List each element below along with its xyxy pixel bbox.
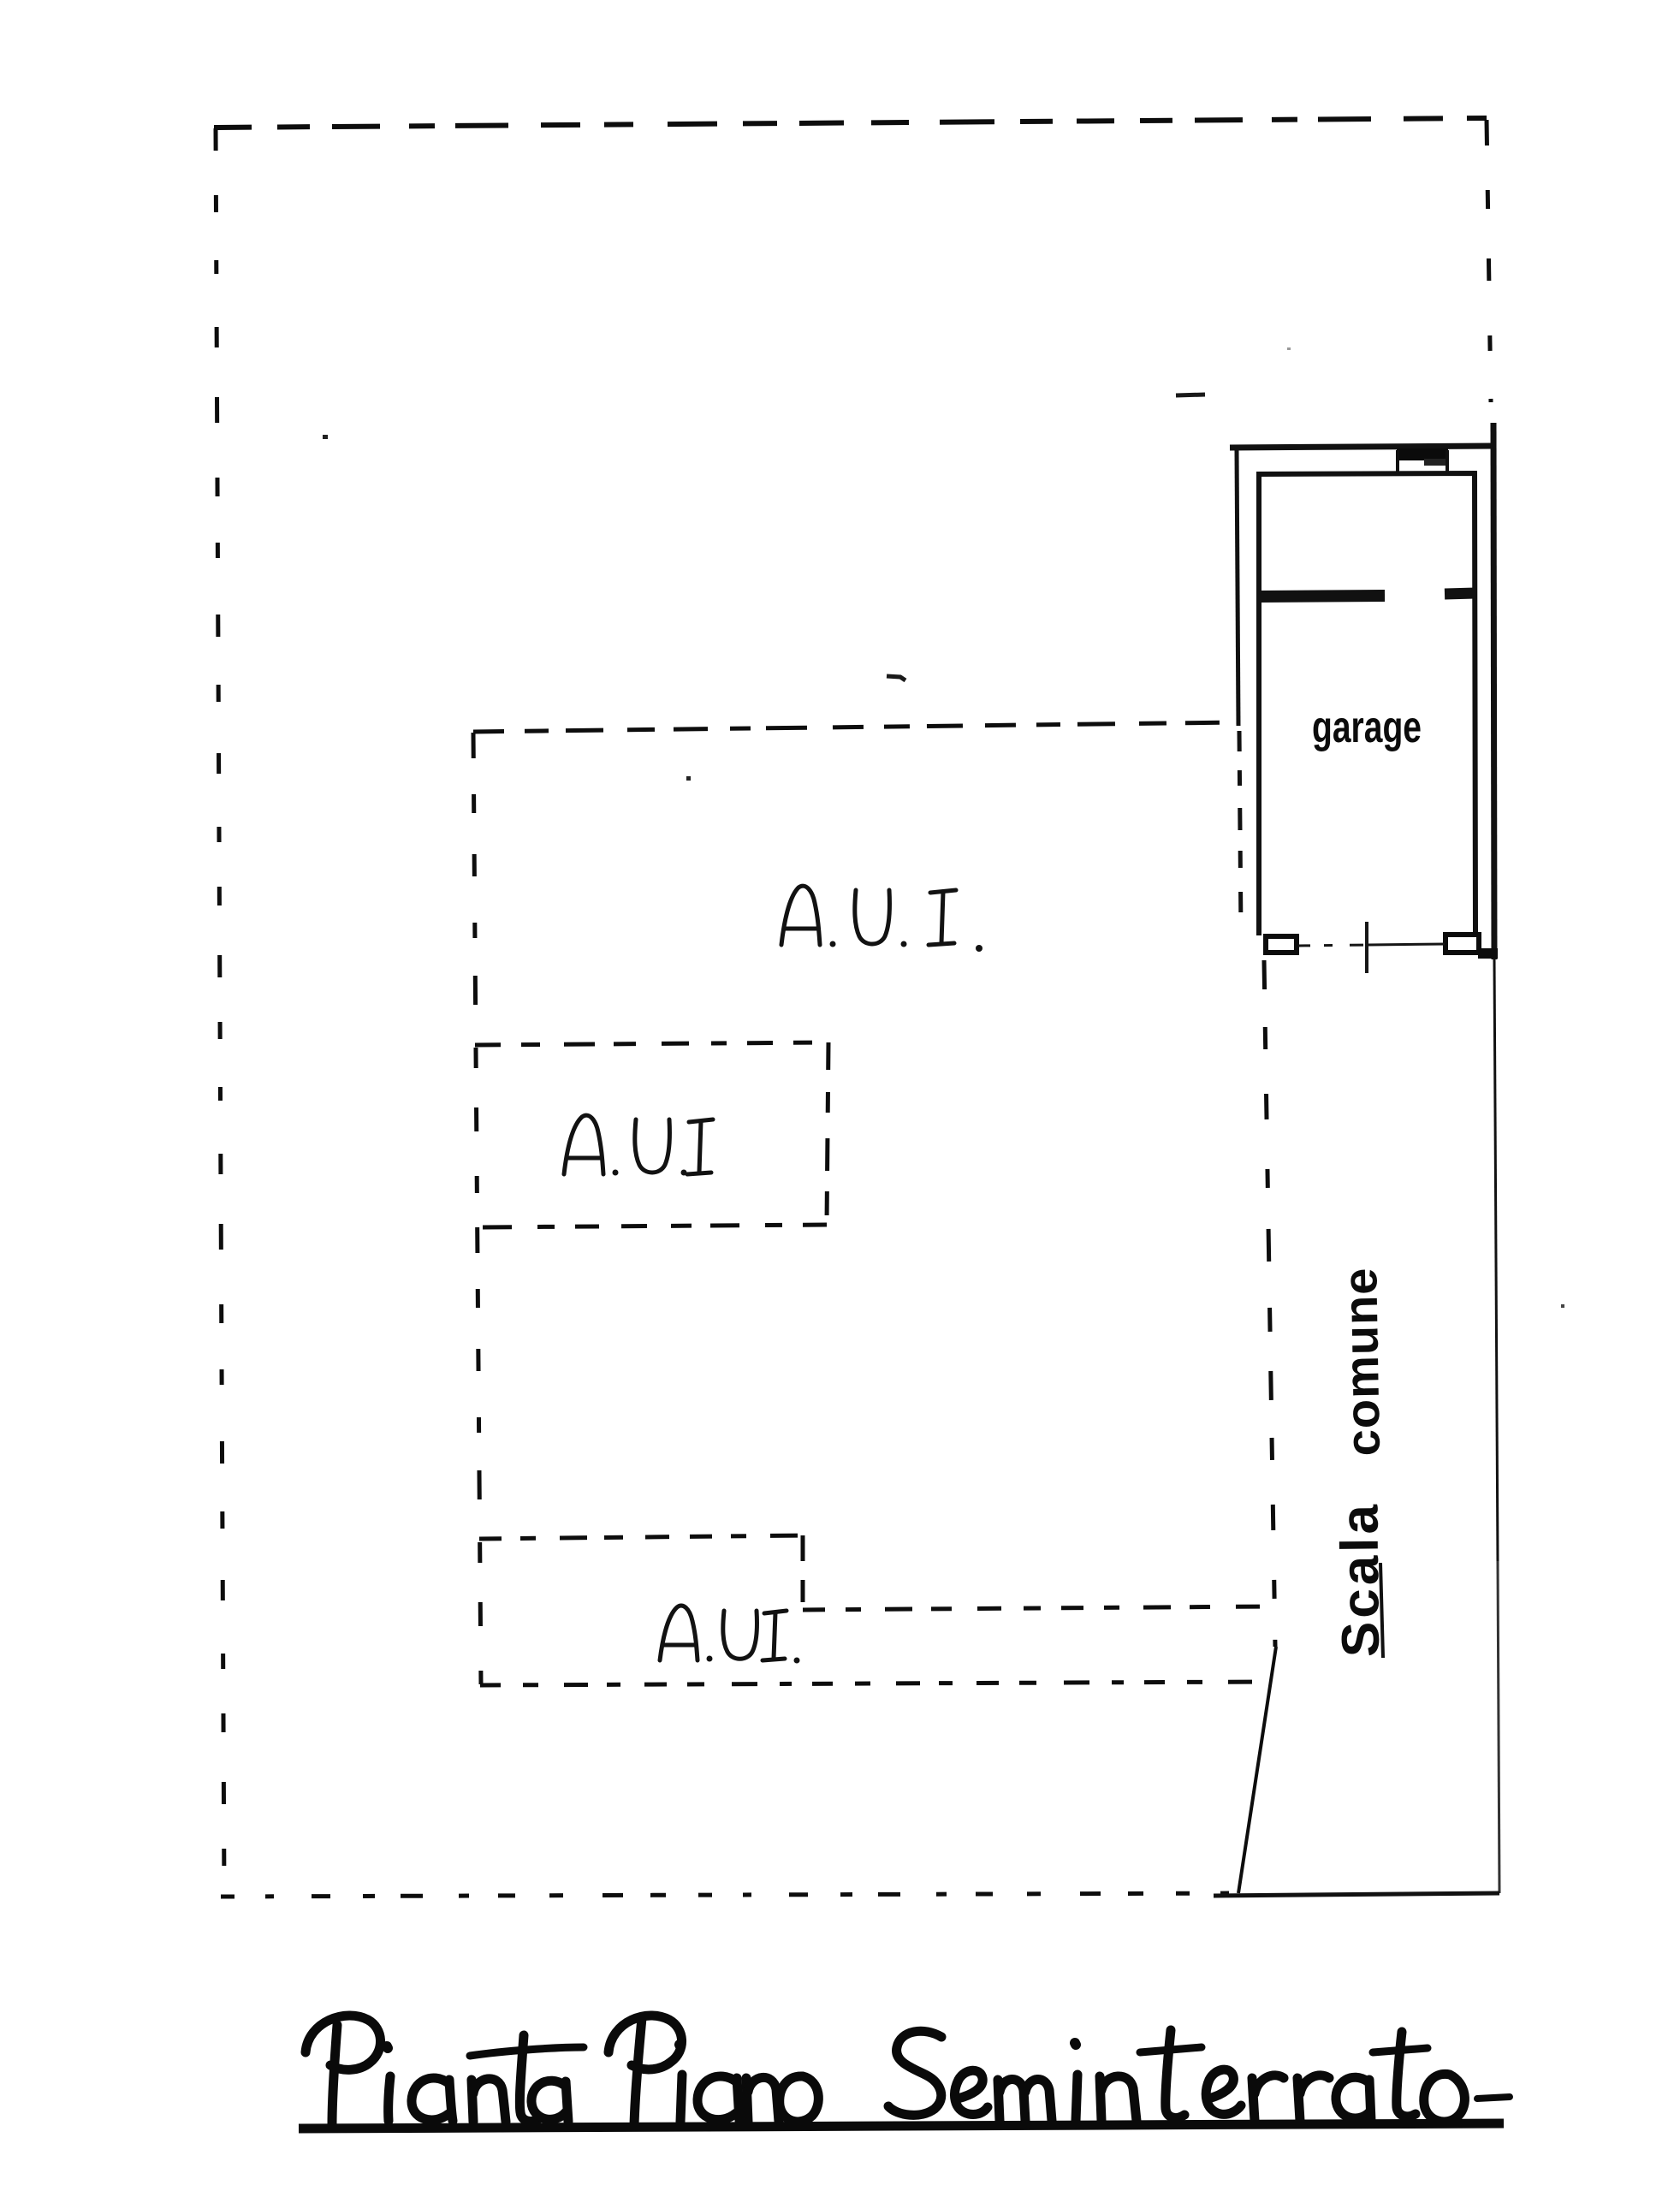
svg-text:comune: comune (1333, 1267, 1390, 1457)
svg-text:garage: garage (1312, 703, 1422, 752)
